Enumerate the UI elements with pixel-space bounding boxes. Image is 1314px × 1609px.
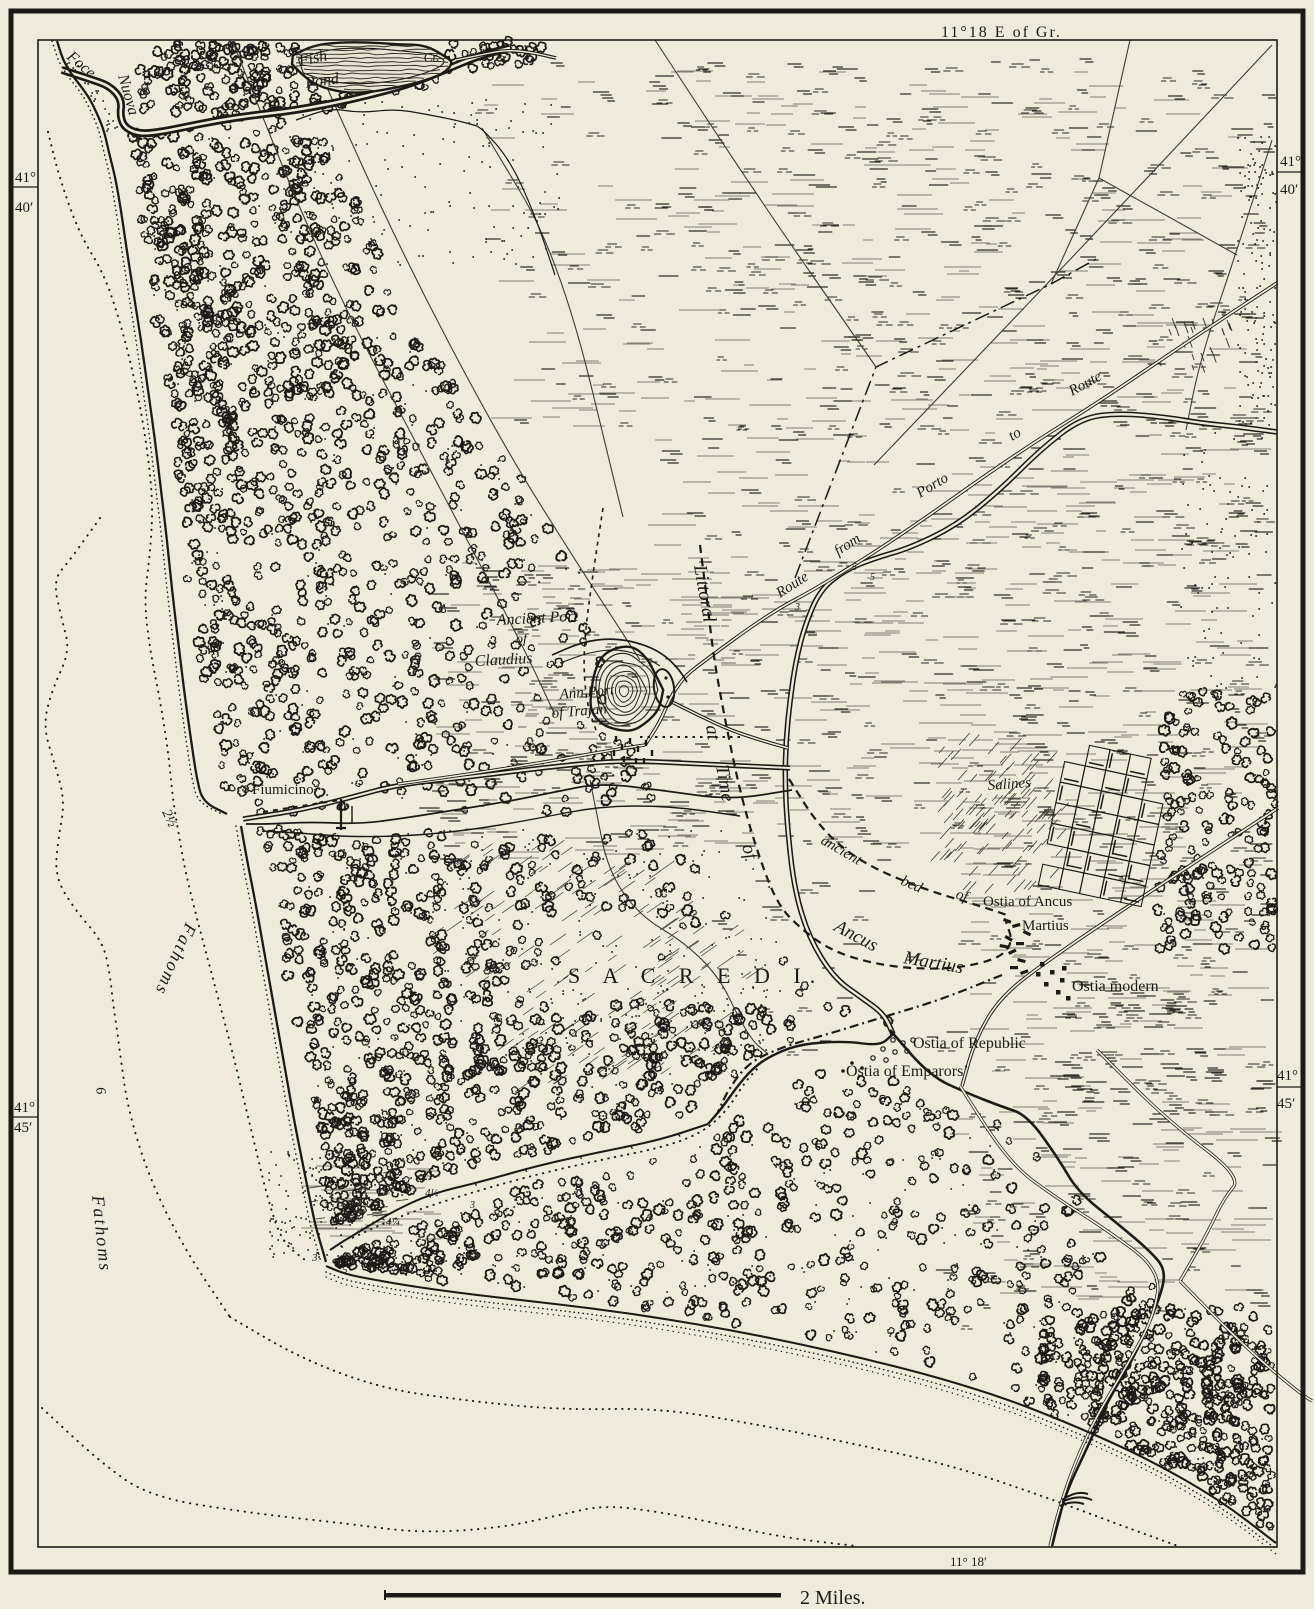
svg-text:Ostia of Emparors’: Ostia of Emparors’: [846, 1063, 969, 1080]
svg-text:3: 3: [311, 1252, 318, 1264]
svg-text:S A C R E D I.: S A C R E D I.: [568, 963, 824, 988]
svg-text:41°: 41°: [1277, 1068, 1298, 1084]
svg-text:Ostia modern: Ostia modern: [1072, 978, 1159, 995]
svg-text:Fiumicino: Fiumicino: [252, 782, 314, 798]
svg-text:2 Miles.: 2 Miles.: [800, 1587, 866, 1609]
svg-text:5: 5: [342, 1264, 348, 1276]
svg-text:11° 18′: 11° 18′: [950, 1554, 987, 1569]
svg-text:40′: 40′: [15, 200, 33, 216]
svg-text:4½: 4½: [425, 1187, 439, 1199]
svg-text:5: 5: [852, 562, 857, 573]
svg-text:5: 5: [870, 572, 875, 583]
svg-text:41°: 41°: [1280, 154, 1301, 170]
svg-text:3: 3: [794, 602, 800, 613]
svg-text:Salines: Salines: [987, 775, 1032, 794]
svg-text:41°: 41°: [14, 1100, 35, 1116]
svg-text:40′: 40′: [1280, 182, 1298, 198]
svg-text:3: 3: [469, 1200, 475, 1211]
svg-text:Ostia of Ancus: Ostia of Ancus: [983, 894, 1072, 910]
svg-text:Claudius: Claudius: [474, 650, 533, 670]
svg-text:Martius: Martius: [1022, 918, 1069, 934]
svg-text:41°: 41°: [15, 170, 36, 186]
svg-text:Ostia of Republic: Ostia of Republic: [913, 1035, 1026, 1052]
svg-text:4¼: 4¼: [386, 1216, 400, 1228]
svg-text:45′: 45′: [1277, 1096, 1295, 1112]
svg-text:11°18 E of Gr.: 11°18 E of Gr.: [941, 24, 1062, 41]
svg-text:Cr.: Cr.: [423, 49, 440, 65]
svg-text:45′: 45′: [14, 1120, 32, 1136]
